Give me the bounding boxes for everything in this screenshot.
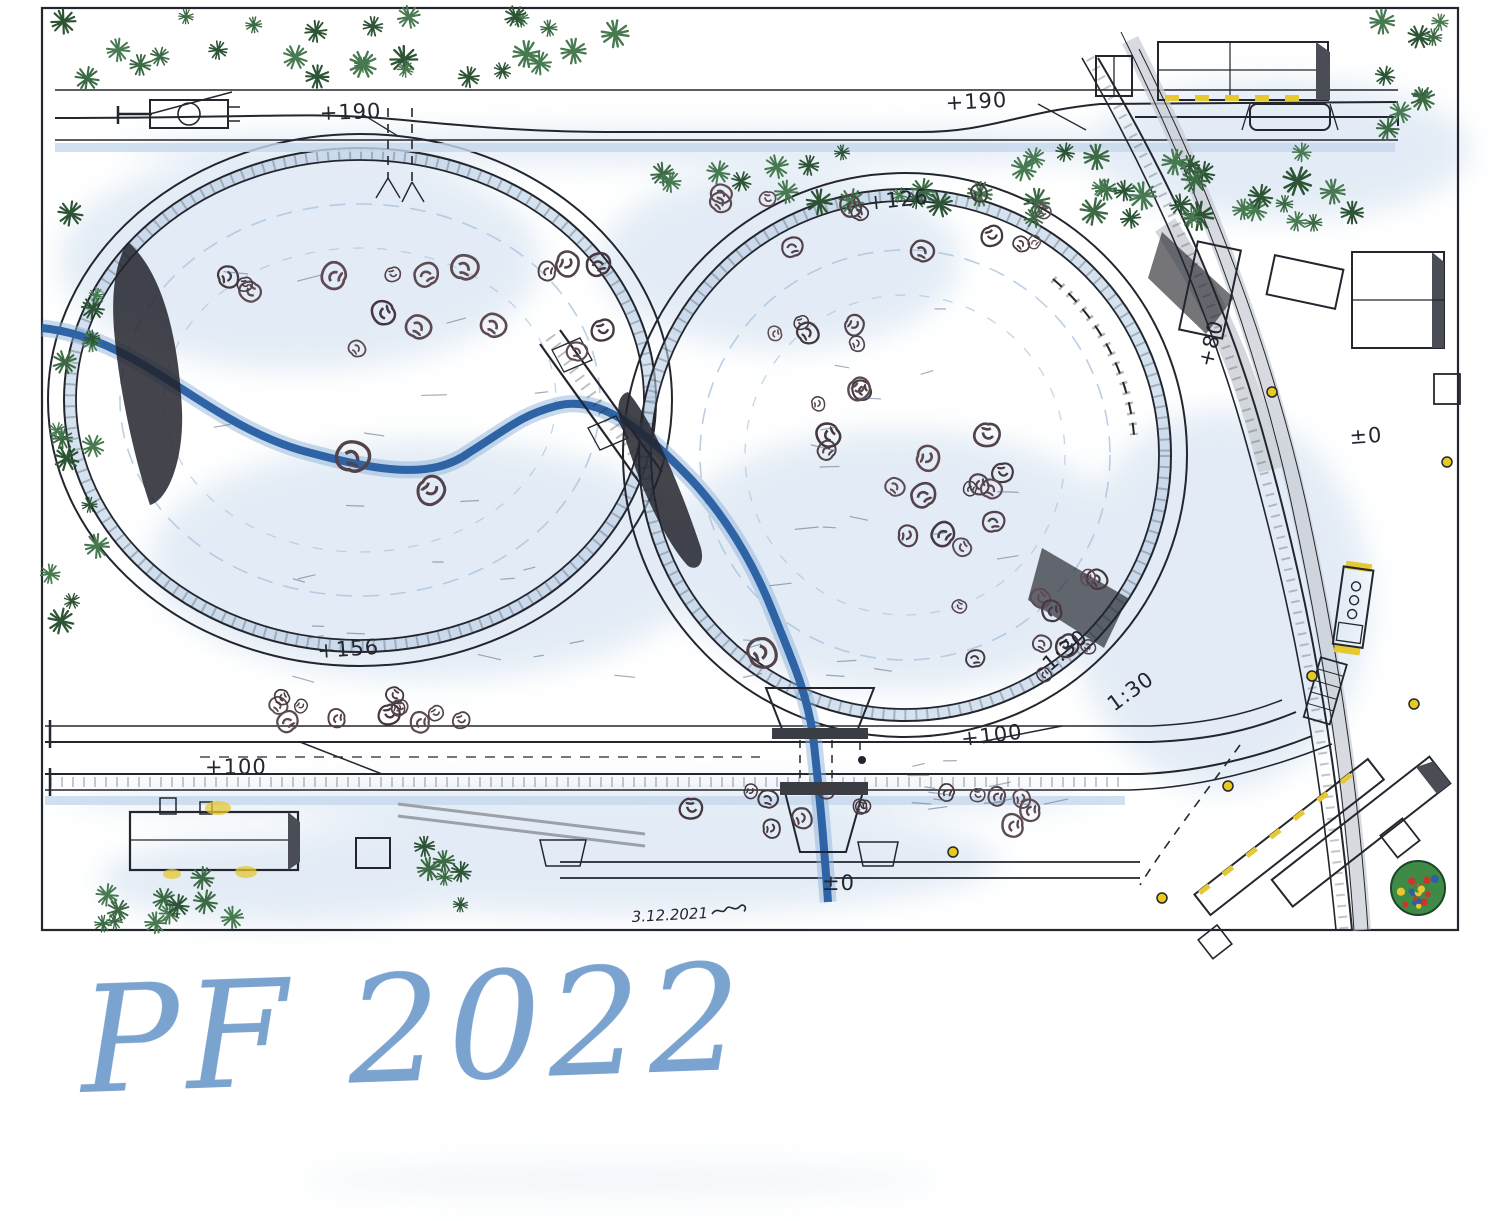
ornament-dot [1408, 878, 1415, 885]
pine-tree-icon [1376, 117, 1399, 140]
ornament-dot [1426, 884, 1431, 889]
ornament-dot [1425, 892, 1431, 898]
ornament-dot [1416, 903, 1421, 908]
elevation-label-top-left: +190 [319, 99, 381, 125]
ornament-dot [1416, 898, 1422, 904]
ornament-dot [1431, 875, 1439, 883]
elevation-label-bottom-center: ±0 [822, 871, 855, 895]
pine-tree-icon [191, 867, 214, 890]
ornament-dot [1418, 885, 1425, 892]
pine-tree-icon [527, 51, 551, 75]
elevation-label-bottom-left: +100 [205, 755, 267, 779]
pine-tree-icon [1181, 167, 1208, 194]
ornament-dot [1403, 902, 1409, 908]
pine-tree-icon [1181, 207, 1201, 227]
snow-dash [421, 395, 447, 396]
elevation-label-left-loop: +156 [317, 635, 380, 663]
snow-dash [997, 492, 1019, 493]
elevation-label-right-edge: ±0 [1349, 423, 1384, 449]
snow-dash [823, 527, 836, 528]
pine-tree-icon [397, 61, 414, 78]
pine-tree-icon [659, 171, 681, 193]
ornament-dot [1423, 877, 1430, 884]
greeting-text: PF 2022 [74, 932, 751, 1127]
track-plan-drawing: +190 +190 +126 +80 ±0 +156 +100 +100 ±0 … [0, 0, 1500, 1221]
pine-tree-icon [1292, 143, 1311, 162]
ornament-dot [1399, 877, 1405, 883]
ornament-dot [1397, 888, 1405, 896]
elevation-label-top-right: +190 [945, 88, 1008, 115]
snow-dash [347, 633, 365, 634]
snow-dash [820, 466, 840, 467]
snow-dash [346, 506, 364, 507]
